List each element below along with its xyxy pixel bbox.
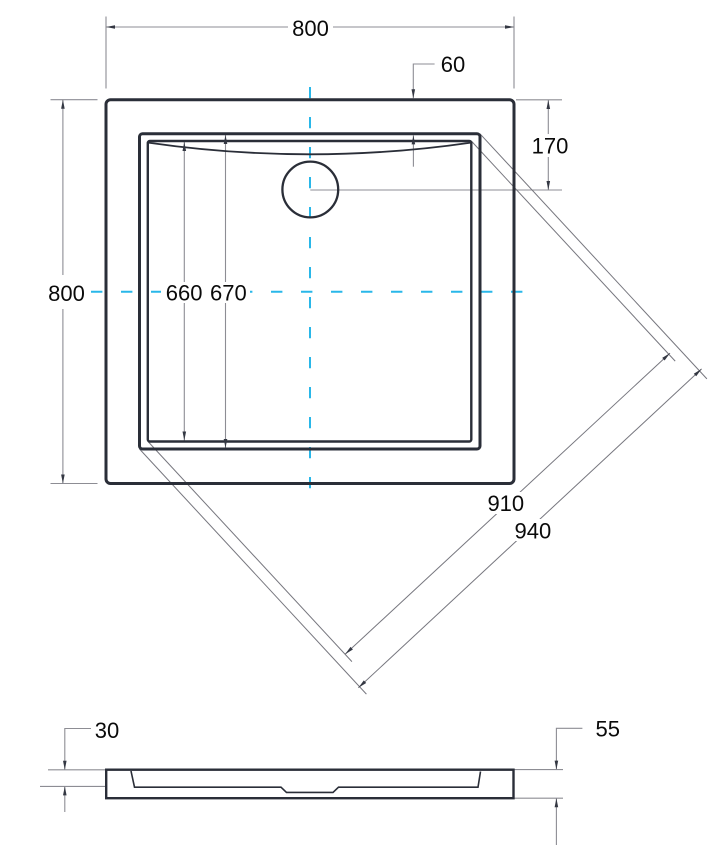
- svg-text:800: 800: [48, 281, 85, 306]
- svg-text:670: 670: [210, 281, 247, 306]
- svg-text:910: 910: [487, 491, 524, 516]
- svg-text:940: 940: [515, 519, 552, 544]
- svg-text:60: 60: [441, 52, 465, 77]
- svg-text:30: 30: [95, 718, 119, 743]
- svg-text:170: 170: [532, 134, 569, 159]
- svg-text:660: 660: [166, 281, 203, 306]
- svg-text:55: 55: [596, 716, 620, 741]
- svg-text:800: 800: [292, 16, 329, 41]
